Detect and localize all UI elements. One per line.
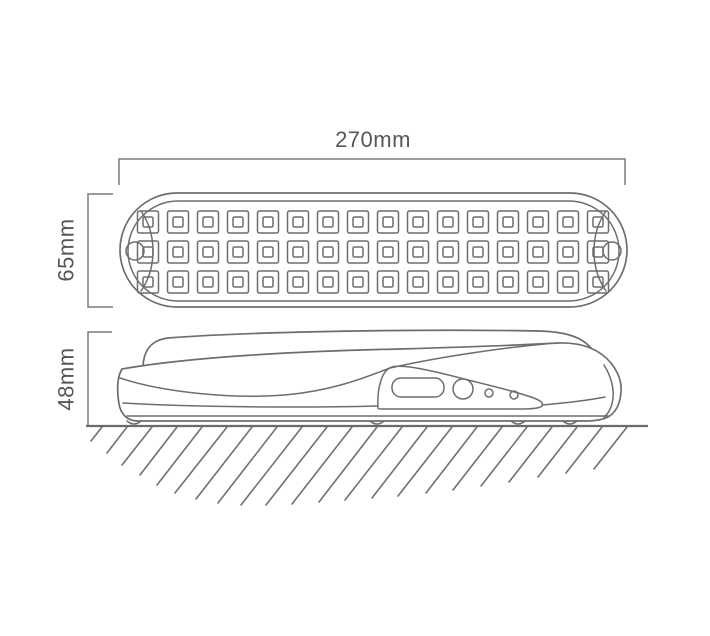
led-inner	[533, 217, 543, 227]
led-outer	[558, 211, 579, 233]
led-outer	[138, 211, 159, 233]
led-inner	[413, 277, 423, 287]
led-outer	[378, 271, 399, 293]
height-dimension-label: 65mm	[54, 218, 79, 281]
led-outer	[168, 271, 189, 293]
led-outer	[528, 211, 549, 233]
led-inner	[203, 217, 213, 227]
height-dimension-bracket	[88, 194, 113, 307]
led-inner	[233, 247, 243, 257]
led-inner	[263, 277, 273, 287]
led-inner	[563, 217, 573, 227]
led-outer	[408, 271, 429, 293]
led-inner	[263, 217, 273, 227]
top-view	[120, 193, 627, 307]
led-outer	[198, 211, 219, 233]
led-inner	[503, 277, 513, 287]
led-outer	[258, 271, 279, 293]
right-hole-scallop	[594, 211, 606, 291]
led-inner	[443, 217, 453, 227]
led-outer	[468, 241, 489, 263]
led-outer	[378, 241, 399, 263]
led-inner	[203, 247, 213, 257]
led-outer	[168, 241, 189, 263]
led-inner	[173, 277, 183, 287]
led-outer	[168, 211, 189, 233]
led-outer	[468, 211, 489, 233]
led-outer	[348, 271, 369, 293]
led-outer	[528, 241, 549, 263]
led-outer	[438, 211, 459, 233]
led-inner	[503, 247, 513, 257]
led-outer	[378, 211, 399, 233]
ground	[86, 426, 648, 505]
led-outer	[498, 241, 519, 263]
led-inner	[413, 247, 423, 257]
width-dimension-label: 270mm	[335, 127, 411, 152]
led-inner	[173, 217, 183, 227]
led-outer	[288, 241, 309, 263]
led-inner	[533, 247, 543, 257]
led-outer	[348, 241, 369, 263]
led-inner	[233, 277, 243, 287]
led-inner	[323, 217, 333, 227]
led-outer	[408, 241, 429, 263]
top-view-outer-shell	[120, 193, 627, 307]
led-inner	[233, 217, 243, 227]
led-inner	[353, 277, 363, 287]
led-outer	[558, 271, 579, 293]
led-inner	[383, 247, 393, 257]
led-inner	[473, 217, 483, 227]
depth-dimension-label: 48mm	[54, 347, 79, 410]
led-inner	[383, 277, 393, 287]
led-inner	[293, 217, 303, 227]
led-inner	[263, 247, 273, 257]
led-inner	[533, 277, 543, 287]
led-outer	[198, 271, 219, 293]
led-outer	[348, 211, 369, 233]
width-dimension-bracket	[119, 159, 625, 185]
diagram-canvas: 270mm 65mm 48mm	[0, 0, 710, 636]
side-view	[118, 330, 621, 424]
led-inner	[353, 217, 363, 227]
led-inner	[323, 277, 333, 287]
led-outer	[288, 211, 309, 233]
led-inner	[473, 247, 483, 257]
led-outer	[288, 271, 309, 293]
led-outer	[498, 271, 519, 293]
led-outer	[258, 241, 279, 263]
led-inner	[563, 277, 573, 287]
led-outer	[258, 211, 279, 233]
led-inner	[563, 247, 573, 257]
led-outer	[228, 241, 249, 263]
led-inner	[293, 277, 303, 287]
led-outer	[318, 241, 339, 263]
led-inner	[203, 277, 213, 287]
led-outer	[528, 271, 549, 293]
led-outer	[438, 241, 459, 263]
led-outer	[588, 211, 609, 233]
led-outer	[468, 271, 489, 293]
led-outer	[318, 271, 339, 293]
led-outer	[228, 271, 249, 293]
led-outer	[228, 211, 249, 233]
led-inner	[293, 247, 303, 257]
led-outer	[198, 241, 219, 263]
top-view-inner-panel	[128, 201, 619, 301]
led-inner	[443, 277, 453, 287]
dimension-drawing: 270mm 65mm 48mm	[0, 0, 710, 636]
led-inner	[473, 277, 483, 287]
led-inner	[323, 247, 333, 257]
led-outer	[558, 241, 579, 263]
height-dimension: 65mm	[54, 194, 114, 307]
led-outer	[318, 211, 339, 233]
depth-dimension: 48mm	[54, 332, 113, 426]
led-inner	[173, 247, 183, 257]
width-dimension: 270mm	[119, 127, 625, 185]
ground-hatching	[91, 427, 627, 505]
led-outer	[498, 211, 519, 233]
led-outer	[438, 271, 459, 293]
depth-dimension-bracket	[88, 332, 112, 426]
led-inner	[383, 217, 393, 227]
led-outer	[138, 271, 159, 293]
led-inner	[443, 247, 453, 257]
led-inner	[503, 217, 513, 227]
led-inner	[413, 217, 423, 227]
led-inner	[353, 247, 363, 257]
led-grid	[138, 211, 609, 293]
led-outer	[408, 211, 429, 233]
